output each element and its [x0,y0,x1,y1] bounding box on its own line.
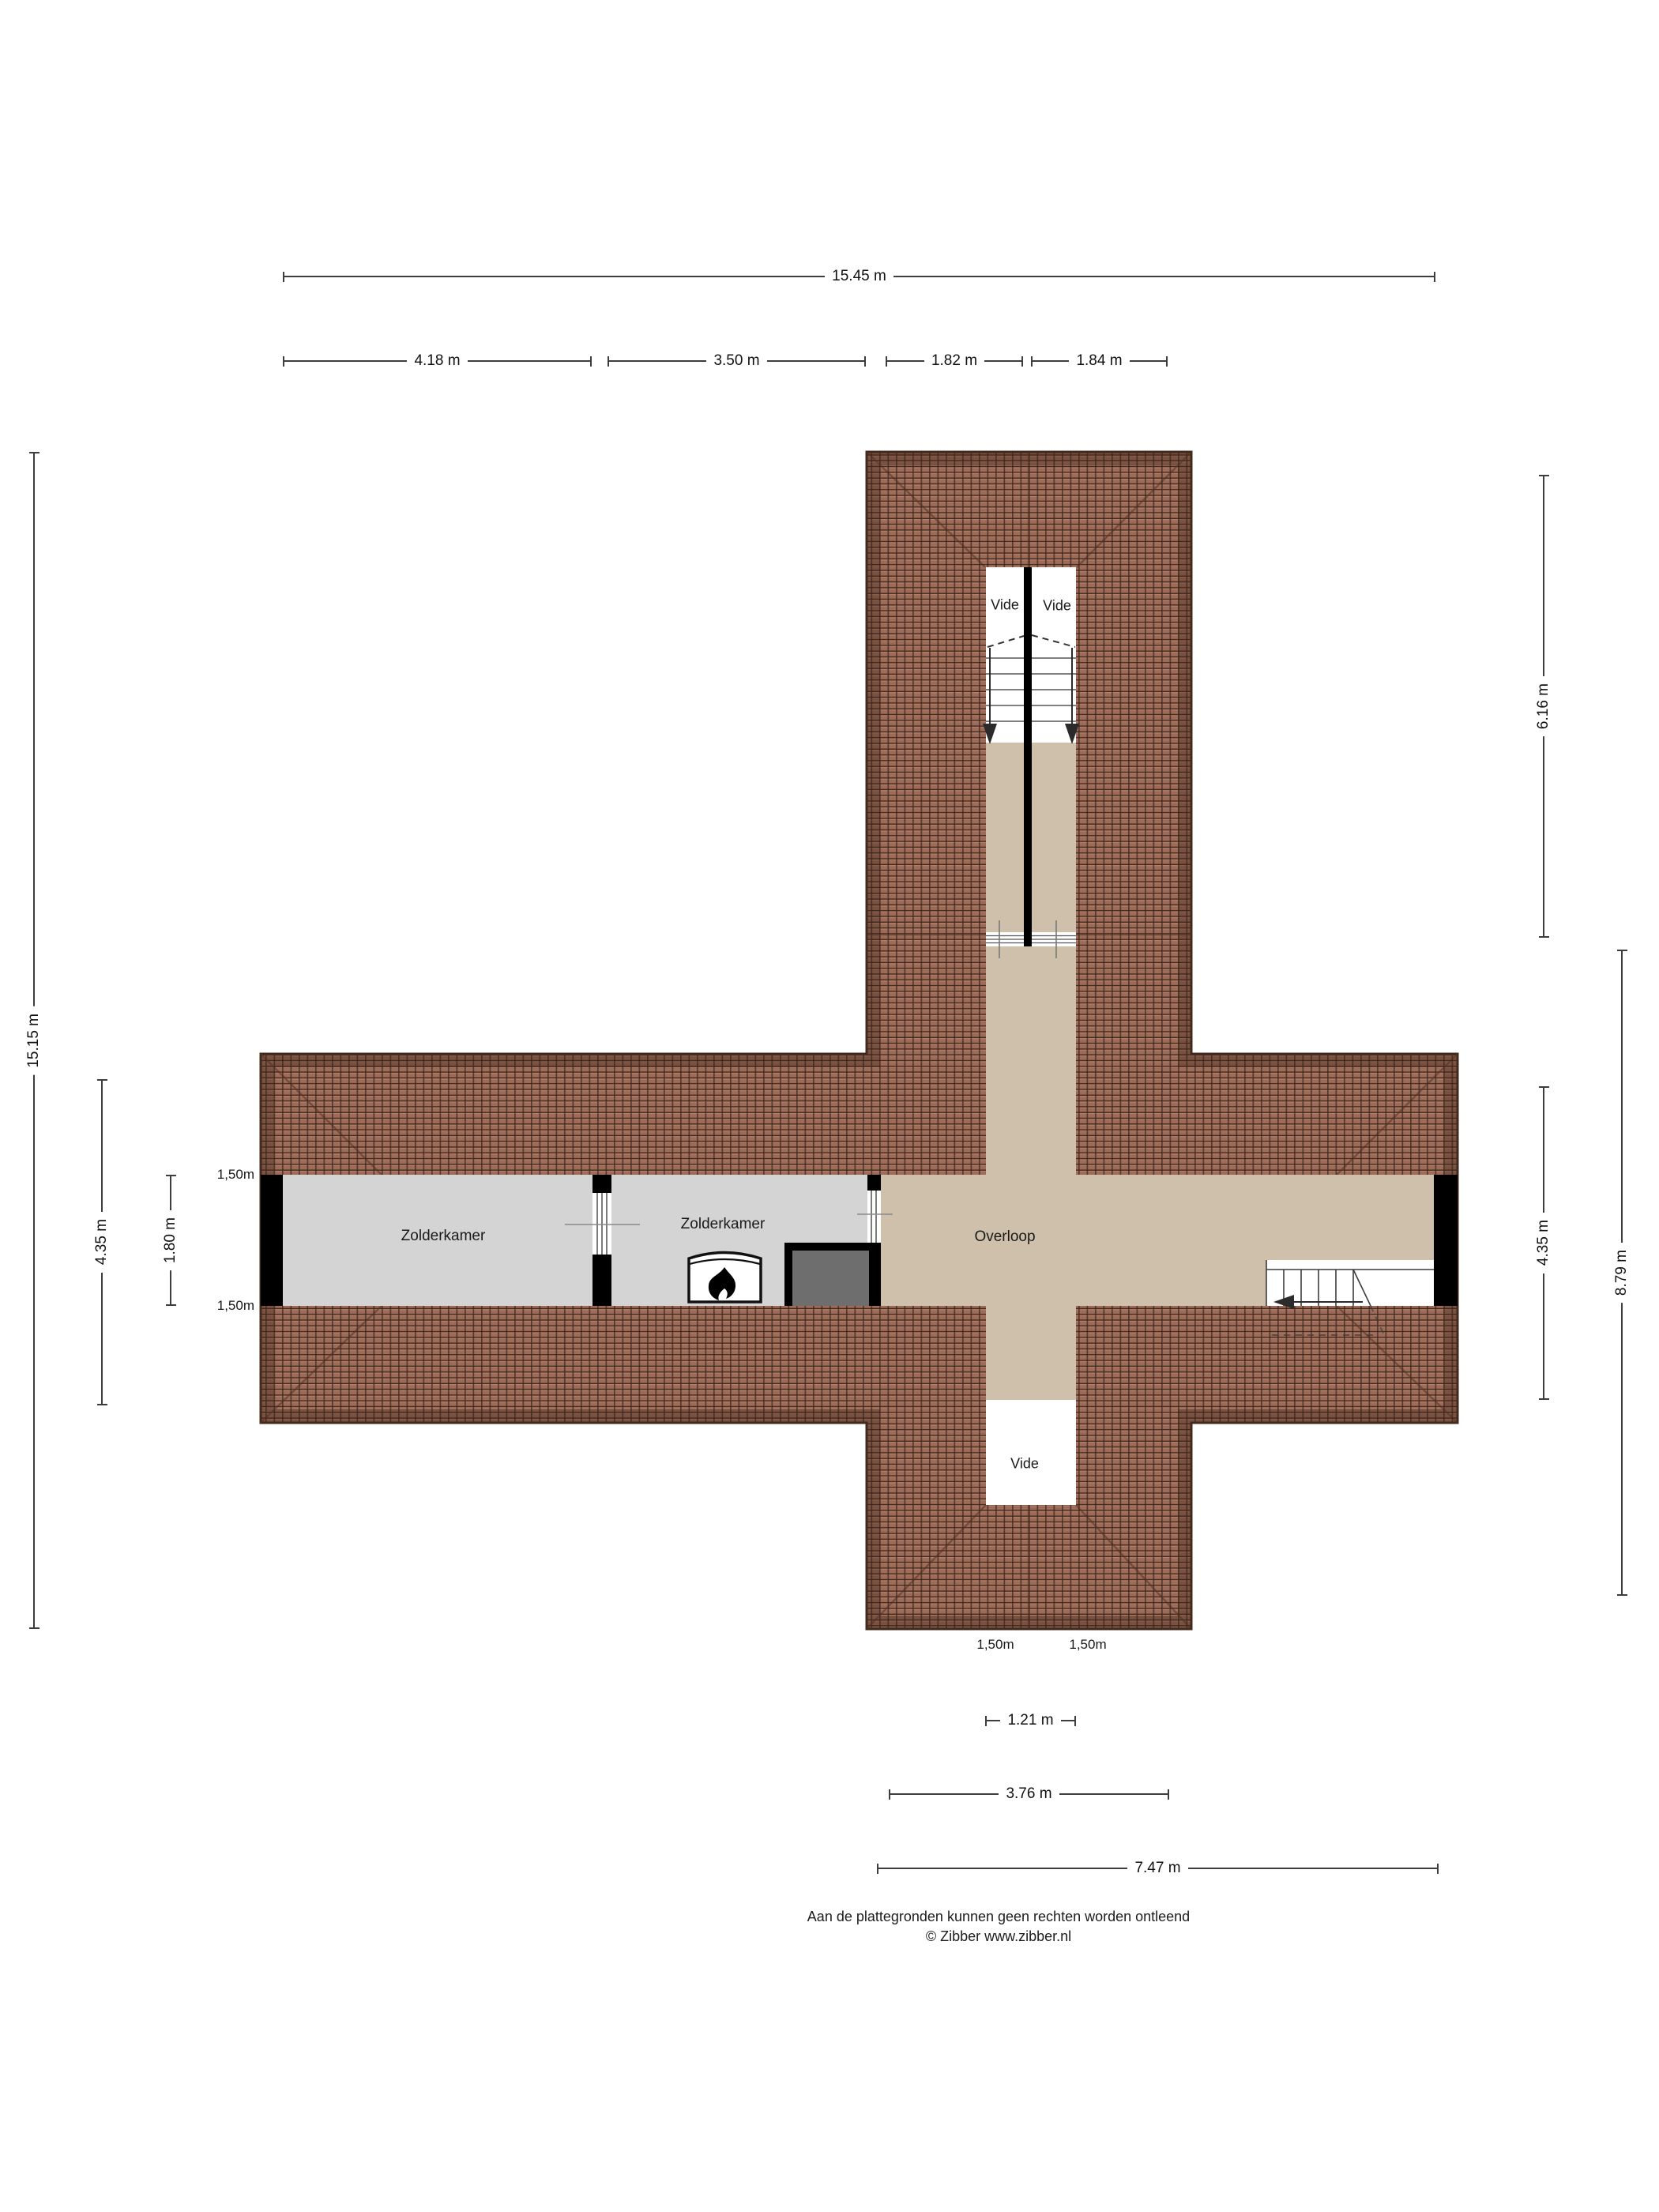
dim-tick [97,1404,107,1405]
dim-line [1543,476,1544,676]
dim-left-room: 1.80 m [160,1175,181,1306]
roof [261,452,1458,1629]
dim-top-seg-3: 1.82 m [886,351,1023,371]
dim-line [893,276,1434,277]
room-label-vide-top-left: Vide [991,597,1019,614]
dim-tick [1539,936,1549,938]
storage-block [784,1243,881,1306]
dim-line [767,360,864,362]
dim-line [33,453,35,1006]
dim-right-lower: 8.79 m [1612,950,1632,1596]
dim-top-seg-4: 1.84 m [1031,351,1168,371]
dim-right-wing: 4.35 m [1533,1086,1554,1400]
dim-line [609,360,706,362]
footer-line-1: Aan de plattegronden kunnen geen rechten… [807,1907,1190,1927]
dim-left-wing: 4.35 m [92,1079,112,1405]
dim-label: 6.16 m [1535,676,1552,736]
room-label-vide-bottom: Vide [1010,1456,1039,1473]
dim-top-total: 15.45 m [283,266,1435,287]
dim-tick [1617,1594,1627,1596]
dim-line [101,1273,103,1404]
dim-bottom-vide: 1.21 m [985,1710,1076,1731]
dim-line [987,1720,1000,1721]
dim-label: 1.80 m [162,1210,179,1270]
wall-stair-spine [1024,567,1032,946]
knee-wall-label: 1,50m [976,1637,1014,1653]
room-label-zolderkamer-right: Zolderkamer [681,1216,766,1233]
room-label-overloop: Overloop [974,1228,1035,1246]
dim-label: 1.82 m [924,351,984,371]
dim-label: 1.84 m [1069,351,1129,371]
dim-tick [1166,356,1168,367]
dim-line [1061,1720,1074,1721]
room-label-vide-top-right: Vide [1043,598,1071,615]
dim-line [1033,360,1069,362]
dim-line [1188,1868,1437,1869]
dim-line [101,1081,103,1212]
dim-tick [166,1304,176,1306]
dim-bottom-inner: 3.76 m [889,1784,1169,1804]
wall-right-outer [1434,1175,1458,1306]
dim-line [284,360,407,362]
dim-tick [590,356,592,367]
dim-line [170,1270,171,1304]
dim-top-seg-1: 4.18 m [283,351,592,371]
footer-line-2: © Zibber www.zibber.nl [807,1927,1190,1947]
wall-overloop [867,1243,881,1306]
dim-line [887,360,924,362]
knee-wall-label: 1,50m [1069,1637,1106,1653]
dim-left-total: 15.15 m [24,452,44,1629]
floorplan-page: Zolderkamer Zolderkamer Overloop Vide Vi… [0,0,1659,2212]
dim-tick [1539,1398,1549,1400]
dim-label: 4.18 m [407,351,467,371]
floorplan-drawing [0,0,1659,2212]
dim-label: 7.47 m [1127,1858,1187,1879]
dim-label: 4.35 m [93,1212,111,1272]
dim-label: 3.50 m [706,351,766,371]
dim-tick [1021,356,1023,367]
dim-tick [864,356,866,367]
dim-line [1621,1303,1623,1594]
dim-right-vide: 6.16 m [1533,475,1554,938]
dim-line [878,1868,1127,1869]
dim-line [468,360,590,362]
dim-label: 15.45 m [825,266,893,287]
dim-line [1543,1088,1544,1213]
dim-line [284,276,825,277]
vide-bottom-opening [986,1400,1076,1505]
roof-tiles [261,452,1458,1629]
dim-label: 3.76 m [999,1784,1059,1804]
dim-tick [29,1627,39,1629]
dim-tick [1074,1716,1076,1726]
dim-label: 4.35 m [1535,1213,1552,1273]
roof-outline [261,452,1458,1629]
dim-line [1543,1273,1544,1398]
knee-wall-label: 1,50m [217,1298,254,1314]
dim-line [984,360,1021,362]
knee-wall-label: 1,50m [217,1167,254,1183]
dim-line [1130,360,1166,362]
dim-line [170,1176,171,1210]
dim-top-seg-2: 3.50 m [608,351,866,371]
wall-overloop [867,1175,881,1191]
dim-line [1543,736,1544,936]
wall-left-outer [261,1175,283,1306]
dim-line [33,1074,35,1627]
fireplace-icon [689,1253,761,1303]
dim-bottom-wing: 7.47 m [877,1858,1439,1879]
footer-disclaimer: Aan de plattegronden kunnen geen rechten… [807,1907,1190,1947]
dim-label: 15.15 m [25,1006,43,1075]
dim-tick [1434,272,1435,282]
dim-label: 8.79 m [1613,1243,1631,1303]
roof-ridge-lines [261,452,1458,1629]
dim-tick [1437,1864,1439,1874]
dim-label: 1.21 m [1000,1710,1060,1731]
wall-mid [592,1175,611,1193]
dim-tick [1168,1789,1169,1800]
dim-line [1059,1793,1168,1795]
room-label-zolderkamer-left: Zolderkamer [401,1228,486,1245]
roof-eaves-band [261,452,1458,1629]
wall-mid [592,1255,611,1306]
dim-line [1621,951,1623,1243]
dim-line [890,1793,999,1795]
